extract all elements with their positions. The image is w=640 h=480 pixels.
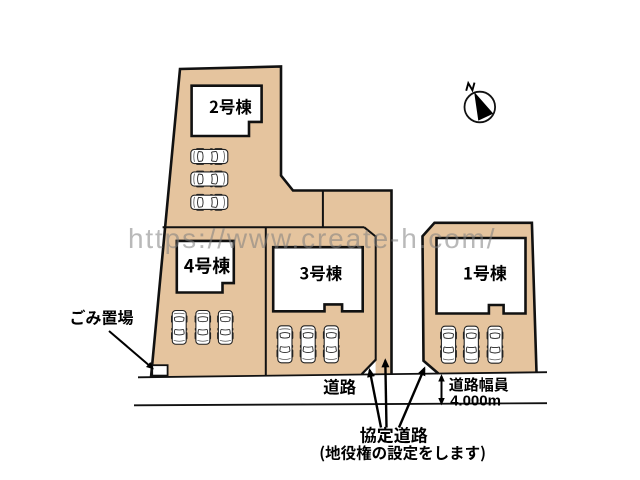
svg-text:ごみ置場: ごみ置場	[69, 304, 133, 328]
svg-text:4.000m: 4.000m	[450, 393, 501, 410]
svg-text:道路: 道路	[323, 374, 357, 398]
svg-text:https://www.create-h.com/: https://www.create-h.com/	[128, 223, 496, 254]
svg-text:4号棟: 4号棟	[184, 253, 231, 279]
svg-text:3号棟: 3号棟	[300, 261, 343, 285]
svg-text:2号棟: 2号棟	[209, 94, 252, 118]
svg-text:1号棟: 1号棟	[463, 259, 507, 284]
svg-text:(地役権の設定をします): (地役権の設定をします)	[319, 441, 486, 463]
